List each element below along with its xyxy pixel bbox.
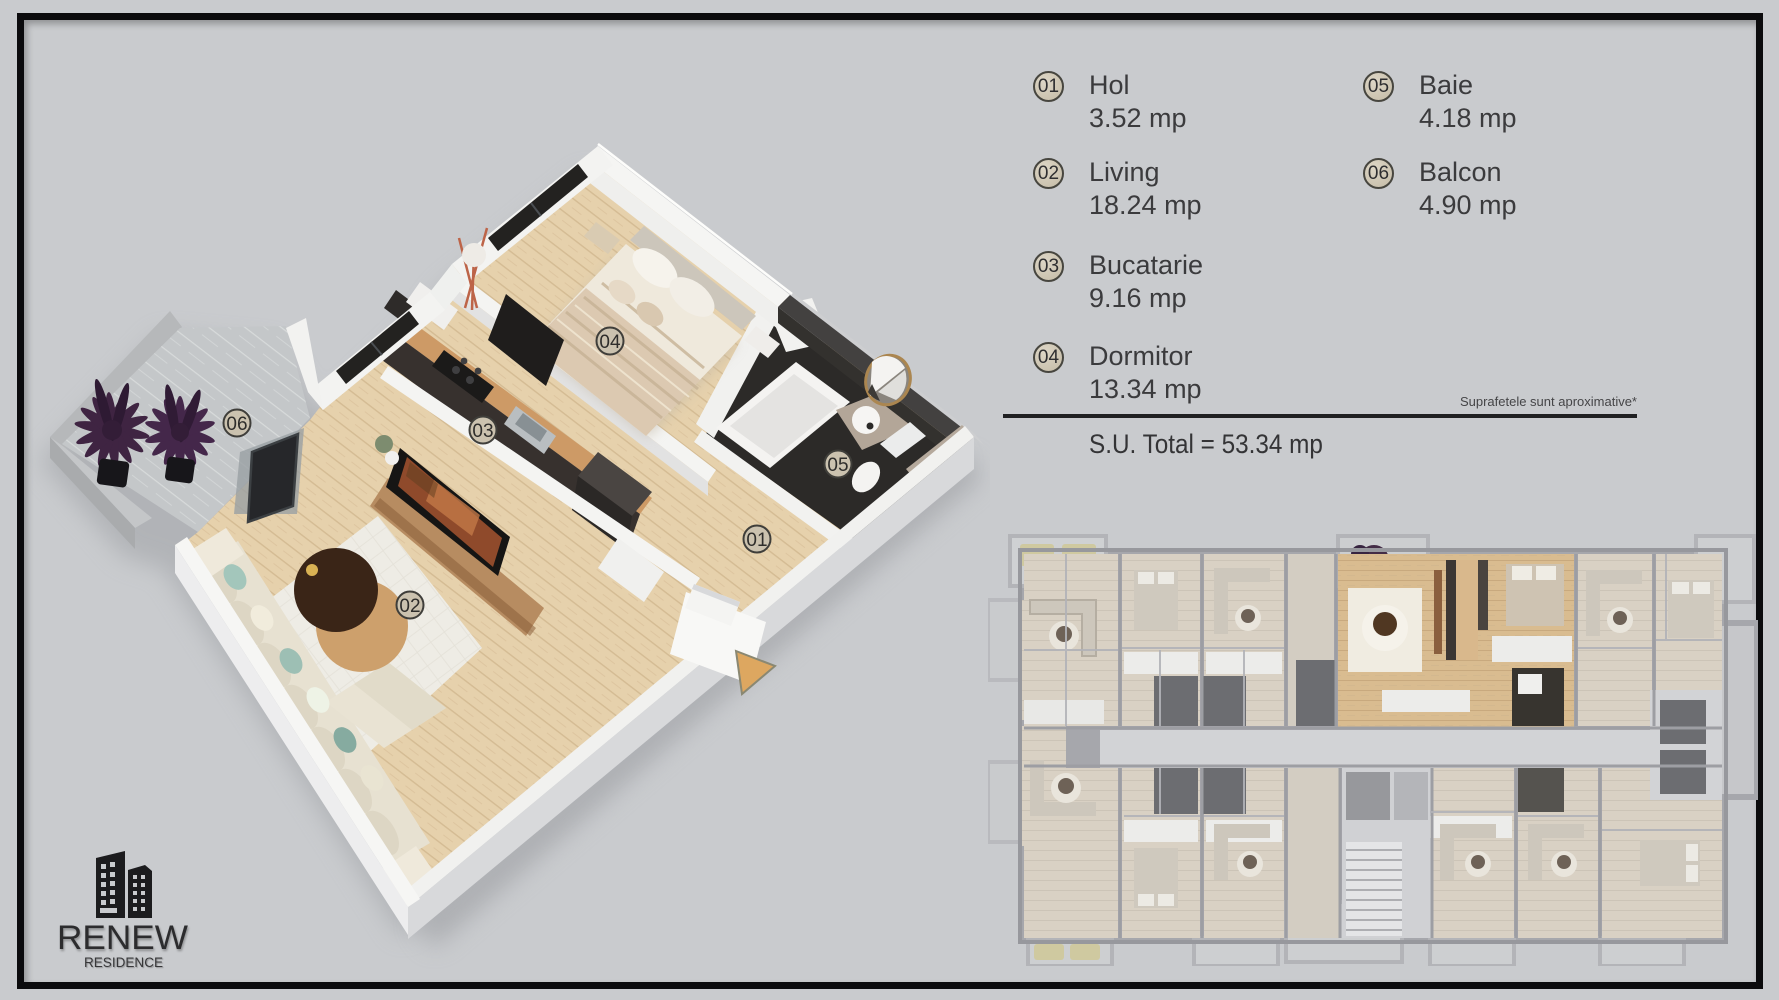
svg-text:06: 06 [226,414,247,435]
svg-text:02: 02 [399,596,420,617]
svg-text:03: 03 [472,421,493,442]
svg-text:01: 01 [746,530,767,551]
svg-text:04: 04 [599,332,621,353]
svg-text:05: 05 [827,455,848,476]
